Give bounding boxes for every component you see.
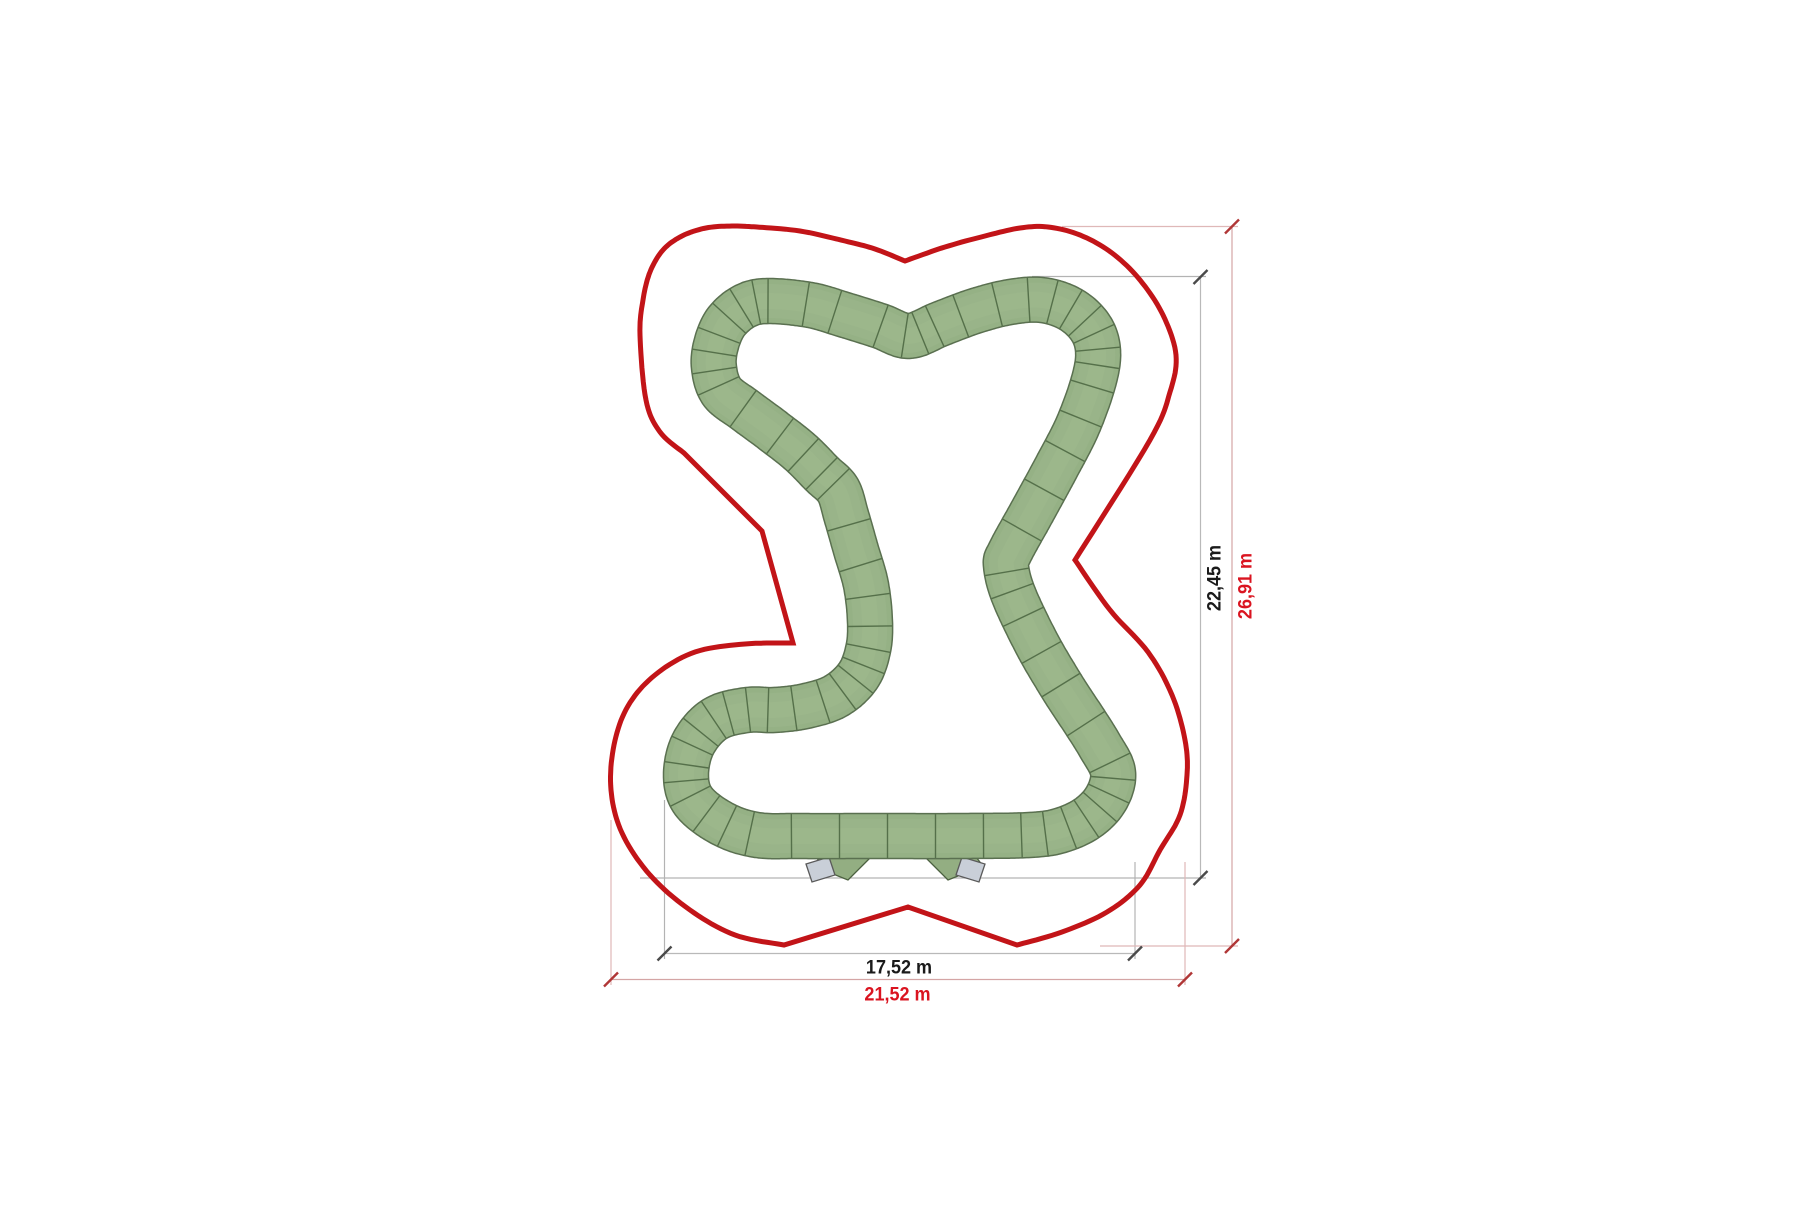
svg-text:21,52 m: 21,52 m	[864, 983, 930, 1005]
svg-text:17,52 m: 17,52 m	[866, 956, 932, 978]
svg-text:26,91 m: 26,91 m	[1234, 553, 1256, 619]
svg-text:22,45 m: 22,45 m	[1203, 545, 1225, 611]
